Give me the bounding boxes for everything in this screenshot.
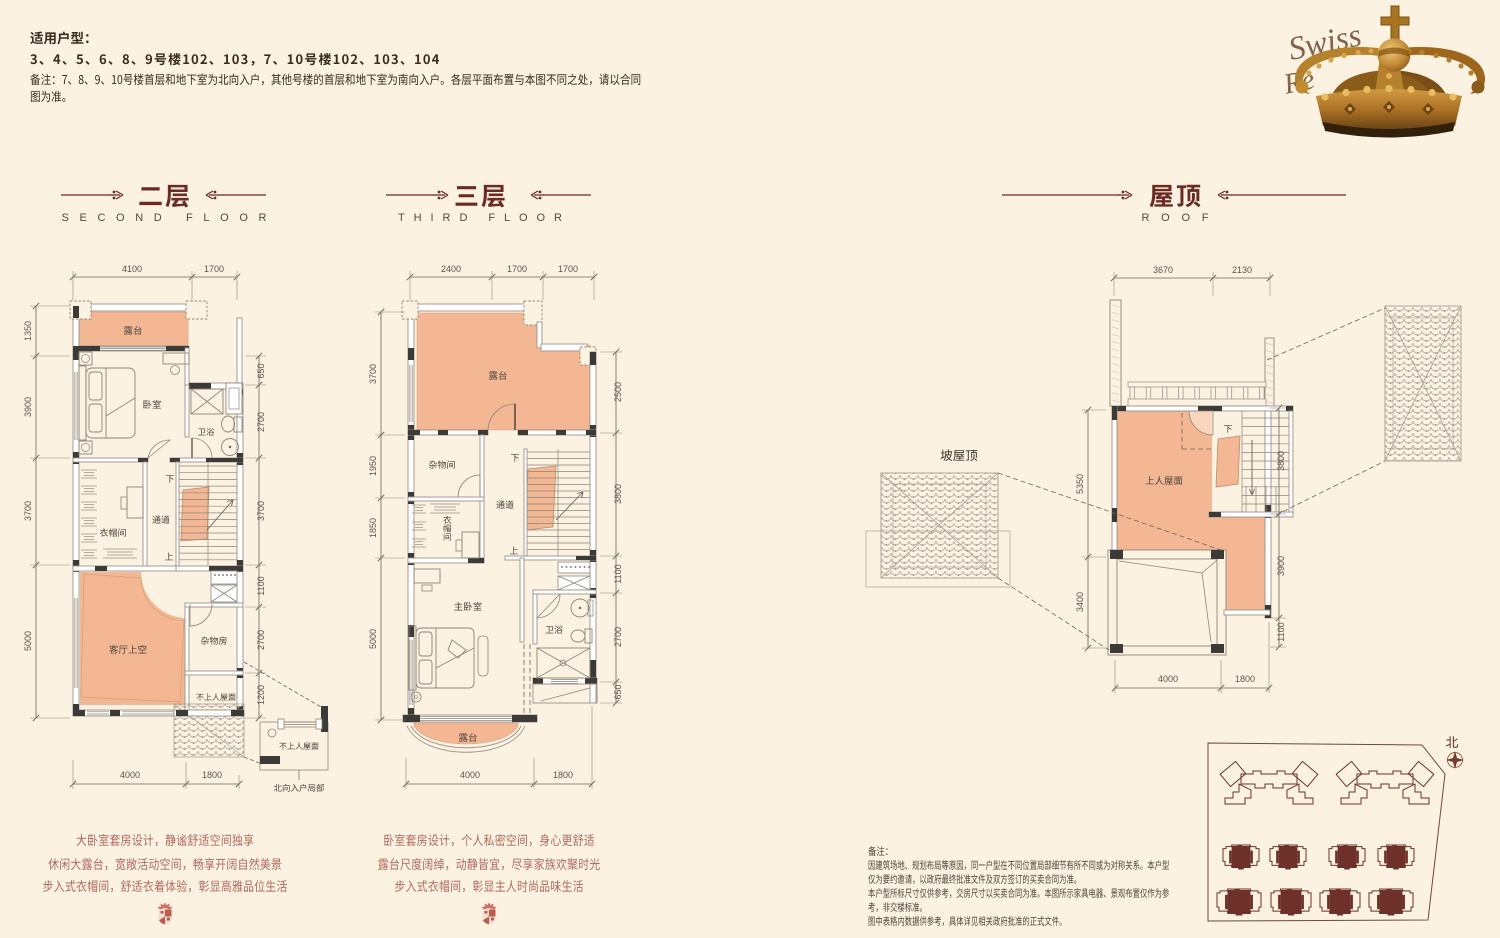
svg-text:3700: 3700 — [368, 364, 378, 384]
svg-text:1850: 1850 — [368, 518, 378, 538]
svg-text:5000: 5000 — [23, 631, 33, 651]
svg-text:1200: 1200 — [256, 685, 266, 705]
svg-text:2500: 2500 — [613, 382, 623, 402]
svg-text:3700: 3700 — [23, 501, 33, 521]
svg-text:5000: 5000 — [368, 629, 378, 649]
svg-text:3400: 3400 — [1075, 592, 1085, 612]
svg-text:2700: 2700 — [256, 412, 266, 432]
svg-text:1700: 1700 — [507, 264, 527, 274]
svg-text:650: 650 — [613, 684, 623, 699]
svg-text:SECOND FLOOR: SECOND FLOOR — [62, 212, 267, 224]
svg-text:THIRD FLOOR: THIRD FLOOR — [398, 212, 562, 224]
svg-text:1800: 1800 — [1235, 674, 1255, 684]
svg-text:1700: 1700 — [204, 264, 224, 274]
svg-text:1800: 1800 — [202, 770, 222, 780]
svg-text:3900: 3900 — [1276, 556, 1286, 576]
svg-text:4000: 4000 — [120, 770, 140, 780]
svg-text:2130: 2130 — [1232, 265, 1252, 275]
svg-text:3670: 3670 — [1153, 265, 1173, 275]
svg-text:650: 650 — [256, 363, 266, 378]
svg-text:2700: 2700 — [256, 630, 266, 650]
svg-text:1700: 1700 — [558, 264, 578, 274]
svg-text:3800: 3800 — [613, 484, 623, 504]
svg-text:ROOF: ROOF — [1142, 212, 1209, 224]
svg-text:1350: 1350 — [23, 321, 33, 341]
svg-text:1100: 1100 — [1276, 622, 1286, 641]
svg-text:Swiss: Swiss — [1285, 17, 1364, 67]
svg-text:1100: 1100 — [256, 576, 266, 595]
svg-text:3800: 3800 — [1276, 451, 1286, 471]
svg-text:2700: 2700 — [613, 627, 623, 647]
svg-text:2400: 2400 — [441, 264, 461, 274]
svg-text:4000: 4000 — [460, 770, 480, 780]
svg-text:5350: 5350 — [1075, 474, 1085, 494]
svg-text:1950: 1950 — [368, 456, 378, 476]
svg-text:4000: 4000 — [1158, 674, 1178, 684]
svg-text:1100: 1100 — [613, 564, 623, 583]
svg-text:1800: 1800 — [553, 770, 573, 780]
svg-text:4100: 4100 — [122, 264, 142, 274]
svg-text:3700: 3700 — [256, 501, 266, 521]
svg-text:3900: 3900 — [23, 397, 33, 417]
